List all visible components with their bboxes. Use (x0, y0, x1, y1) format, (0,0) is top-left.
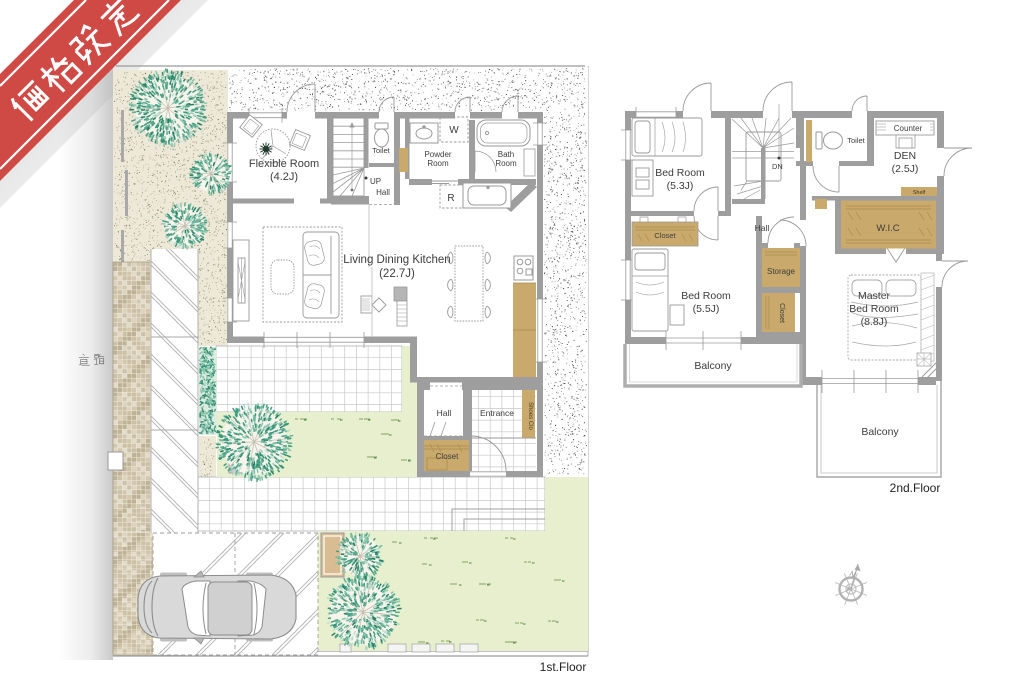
svg-text:Flexible Room: Flexible Room (249, 158, 319, 170)
svg-text:Counter: Counter (894, 124, 923, 133)
svg-text:Hall: Hall (755, 223, 770, 233)
svg-text:Room: Room (427, 159, 449, 168)
svg-text:Bath: Bath (498, 150, 514, 159)
svg-text:Closet: Closet (436, 452, 459, 461)
svg-text:Toilet: Toilet (372, 146, 390, 155)
svg-text:(5.3J): (5.3J) (667, 180, 694, 192)
svg-text:(5.5J): (5.5J) (693, 303, 720, 315)
svg-text:Hall: Hall (437, 408, 452, 418)
svg-text:(4.2J): (4.2J) (270, 171, 298, 183)
svg-text:Bed Room: Bed Room (681, 290, 731, 302)
svg-text:Master: Master (858, 290, 891, 302)
svg-text:(8.8J): (8.8J) (861, 316, 888, 328)
svg-text:Bed Room: Bed Room (655, 167, 705, 179)
svg-text:Shoes Clo: Shoes Clo (527, 402, 533, 430)
svg-text:Shelf: Shelf (913, 190, 926, 196)
svg-text:Powder: Powder (424, 150, 451, 159)
svg-text:Balcony: Balcony (694, 360, 732, 372)
svg-text:Closet: Closet (654, 231, 676, 240)
svg-text:W: W (449, 125, 459, 136)
svg-text:Storage: Storage (767, 267, 796, 276)
svg-text:Entrance: Entrance (480, 408, 514, 418)
svg-text:DEN: DEN (894, 150, 916, 162)
svg-text:(2.5J): (2.5J) (892, 163, 919, 175)
svg-text:W.I.C: W.I.C (876, 223, 899, 234)
svg-text:1st.Floor: 1st.Floor (540, 660, 587, 674)
svg-text:Hall: Hall (376, 188, 390, 197)
svg-text:Room: Room (495, 159, 517, 168)
svg-text:R: R (447, 193, 454, 204)
svg-text:Toilet: Toilet (847, 136, 865, 145)
svg-text:Balcony: Balcony (861, 426, 899, 438)
svg-text:Closet: Closet (778, 303, 785, 323)
svg-text:2nd.Floor: 2nd.Floor (890, 481, 941, 495)
svg-text:Living Dining Kitchen: Living Dining Kitchen (343, 254, 450, 266)
svg-text:Bed Room: Bed Room (849, 303, 899, 315)
svg-text:(22.7J): (22.7J) (379, 268, 415, 280)
svg-text:UP: UP (370, 177, 381, 186)
svg-text:DN: DN (772, 162, 783, 171)
